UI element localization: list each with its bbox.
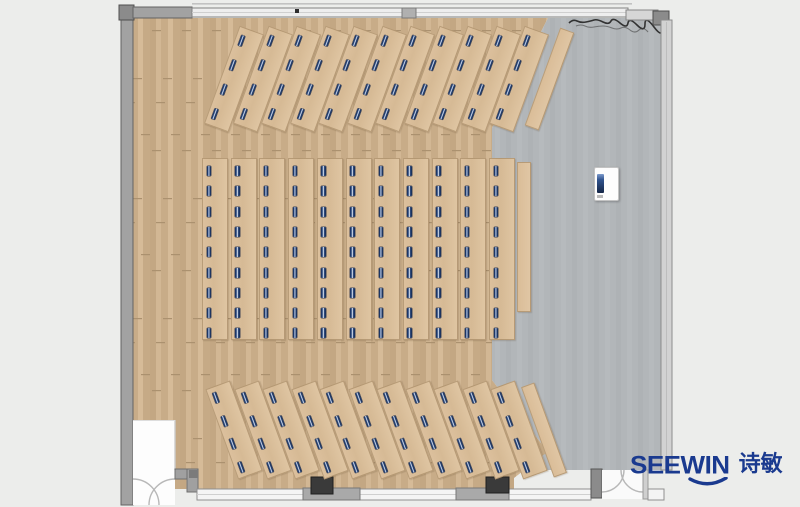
seat-marker: [436, 461, 444, 473]
seat-marker: [220, 84, 228, 96]
seat-marker: [465, 308, 470, 318]
center-desk-grid-desk: [489, 158, 515, 340]
seat-marker: [207, 166, 212, 176]
seat-marker: [391, 84, 399, 96]
podium: [594, 167, 619, 201]
seat-marker: [237, 35, 245, 47]
seat-marker: [294, 461, 302, 473]
seat-marker: [350, 288, 355, 298]
seat-marker: [207, 328, 212, 338]
center-desk-grid-desk: [374, 158, 400, 340]
seat-marker: [379, 268, 384, 278]
seat-marker: [465, 268, 470, 278]
seat-marker: [297, 392, 305, 404]
seat-marker: [321, 186, 326, 196]
seat-marker: [420, 415, 428, 427]
seat-marker: [277, 415, 285, 427]
seat-marker: [257, 438, 265, 450]
seat-marker: [264, 247, 269, 257]
seat-marker: [437, 35, 445, 47]
seat-marker: [411, 392, 419, 404]
seat-marker: [371, 59, 379, 71]
seat-marker: [293, 288, 298, 298]
seat-marker: [436, 247, 441, 257]
seat-marker: [235, 227, 240, 237]
seat-marker: [407, 227, 412, 237]
seat-marker: [456, 438, 464, 450]
seat-marker: [485, 438, 493, 450]
seat-marker: [285, 59, 293, 71]
seat-marker: [277, 84, 285, 96]
seat-marker: [235, 268, 240, 278]
seat-marker: [485, 59, 493, 71]
seat-marker: [407, 207, 412, 217]
seat-marker: [228, 59, 236, 71]
seat-marker: [321, 166, 326, 176]
seat-marker: [321, 328, 326, 338]
seat-marker: [362, 84, 370, 96]
seat-marker: [305, 84, 313, 96]
seat-marker: [207, 308, 212, 318]
seat-marker: [505, 84, 513, 96]
center-desk-grid-desk: [259, 158, 285, 340]
seat-marker: [436, 288, 441, 298]
seat-marker: [293, 186, 298, 196]
seat-marker: [235, 247, 240, 257]
seat-marker: [235, 308, 240, 318]
brand-logo: SEEWIN 诗敏: [630, 452, 783, 478]
seat-marker: [467, 108, 475, 120]
seat-marker: [321, 308, 326, 318]
seat-marker: [350, 227, 355, 237]
seat-marker: [407, 308, 412, 318]
seat-marker: [436, 328, 441, 338]
seat-marker: [350, 308, 355, 318]
podium-tray: [597, 195, 603, 198]
seat-marker: [321, 288, 326, 298]
seat-marker: [211, 108, 219, 120]
seat-marker: [235, 288, 240, 298]
seat-marker: [257, 59, 265, 71]
seat-marker: [350, 166, 355, 176]
seat-marker: [448, 415, 456, 427]
seat-marker: [353, 108, 361, 120]
seat-marker: [207, 227, 212, 237]
seat-marker: [264, 328, 269, 338]
seat-marker: [494, 207, 499, 217]
seat-marker: [264, 227, 269, 237]
seat-marker: [399, 438, 407, 450]
seat-marker: [264, 288, 269, 298]
seat-marker: [293, 247, 298, 257]
seat-marker: [293, 207, 298, 217]
seat-marker: [293, 308, 298, 318]
seat-marker: [468, 392, 476, 404]
seat-marker: [363, 415, 371, 427]
seat-marker: [465, 35, 473, 47]
seat-marker: [379, 328, 384, 338]
center-desk-grid-desk: [288, 158, 314, 340]
seat-marker: [350, 207, 355, 217]
seat-marker: [494, 227, 499, 237]
seat-marker: [407, 268, 412, 278]
center-desk-grid-desk: [202, 158, 228, 340]
seat-marker: [237, 461, 245, 473]
seat-marker: [522, 461, 530, 473]
seat-marker: [493, 461, 501, 473]
seat-marker: [264, 308, 269, 318]
seat-marker: [408, 35, 416, 47]
seat-marker: [379, 288, 384, 298]
seat-marker: [436, 166, 441, 176]
seat-marker: [235, 207, 240, 217]
logo-smile-icon: [687, 477, 729, 490]
seat-marker: [371, 438, 379, 450]
seat-marker: [350, 268, 355, 278]
seat-marker: [465, 247, 470, 257]
seat-marker: [494, 308, 499, 318]
seat-marker: [207, 186, 212, 196]
seat-marker: [321, 207, 326, 217]
seat-marker: [293, 166, 298, 176]
seat-marker: [294, 35, 302, 47]
seat-marker: [513, 59, 521, 71]
seat-marker: [439, 108, 447, 120]
seat-marker: [306, 415, 314, 427]
center-desk-grid-desk: [231, 158, 257, 340]
center-desk-grid-desk: [317, 158, 343, 340]
seat-marker: [342, 438, 350, 450]
seat-marker: [322, 461, 330, 473]
seat-marker: [325, 108, 333, 120]
seat-marker: [428, 59, 436, 71]
seat-marker: [465, 461, 473, 473]
seat-marker: [239, 108, 247, 120]
seat-marker: [410, 108, 418, 120]
logo-chinese: 诗敏: [739, 453, 783, 475]
seat-marker: [264, 186, 269, 196]
seat-marker: [207, 247, 212, 257]
floor-plan-canvas: SEEWIN 诗敏: [0, 0, 800, 507]
seat-marker: [448, 84, 456, 96]
seat-marker: [391, 415, 399, 427]
seat-marker: [321, 247, 326, 257]
seat-marker: [220, 415, 228, 427]
seat-marker: [465, 207, 470, 217]
seat-marker: [342, 59, 350, 71]
seat-marker: [264, 268, 269, 278]
seat-marker: [436, 268, 441, 278]
seat-marker: [379, 186, 384, 196]
seat-marker: [293, 227, 298, 237]
furniture-layer: [0, 0, 800, 507]
seat-marker: [240, 392, 248, 404]
seat-marker: [494, 35, 502, 47]
seat-marker: [350, 328, 355, 338]
seat-marker: [379, 166, 384, 176]
seat-marker: [407, 186, 412, 196]
seat-marker: [380, 35, 388, 47]
center-desk-grid-desk: [432, 158, 458, 340]
seat-marker: [522, 35, 530, 47]
seat-marker: [436, 308, 441, 318]
seat-marker: [207, 288, 212, 298]
seat-marker: [465, 328, 470, 338]
seat-marker: [407, 328, 412, 338]
seat-marker: [321, 227, 326, 237]
seat-marker: [235, 328, 240, 338]
seat-marker: [248, 84, 256, 96]
seat-marker: [266, 35, 274, 47]
seat-marker: [228, 438, 236, 450]
seat-marker: [436, 227, 441, 237]
seat-marker: [265, 461, 273, 473]
podium-screen-icon: [597, 174, 604, 193]
seat-marker: [407, 247, 412, 257]
seat-marker: [207, 207, 212, 217]
seat-marker: [436, 207, 441, 217]
seat-marker: [379, 308, 384, 318]
center-side-table-desk: [517, 162, 531, 312]
seat-marker: [269, 392, 277, 404]
seat-marker: [505, 415, 513, 427]
seat-marker: [419, 84, 427, 96]
seat-marker: [379, 227, 384, 237]
center-desk-grid-desk: [403, 158, 429, 340]
seat-marker: [212, 392, 220, 404]
seat-marker: [379, 461, 387, 473]
seat-marker: [235, 186, 240, 196]
seat-marker: [314, 438, 322, 450]
seat-marker: [350, 186, 355, 196]
seat-marker: [293, 328, 298, 338]
seat-marker: [465, 186, 470, 196]
seat-marker: [379, 207, 384, 217]
seat-marker: [494, 186, 499, 196]
seat-marker: [407, 288, 412, 298]
seat-marker: [293, 268, 298, 278]
seat-marker: [249, 415, 257, 427]
seat-marker: [436, 186, 441, 196]
seat-marker: [399, 59, 407, 71]
seat-marker: [326, 392, 334, 404]
seat-marker: [285, 438, 293, 450]
seat-marker: [440, 392, 448, 404]
seat-marker: [494, 247, 499, 257]
seat-marker: [323, 35, 331, 47]
seat-marker: [235, 166, 240, 176]
seat-marker: [465, 227, 470, 237]
seat-marker: [494, 166, 499, 176]
seat-marker: [296, 108, 304, 120]
logo-wordmark: SEEWIN: [630, 453, 730, 478]
seat-marker: [456, 59, 464, 71]
seat-marker: [494, 288, 499, 298]
seat-marker: [314, 59, 322, 71]
seat-marker: [207, 268, 212, 278]
seat-marker: [465, 166, 470, 176]
seat-marker: [465, 288, 470, 298]
seat-marker: [264, 166, 269, 176]
seat-marker: [383, 392, 391, 404]
seat-marker: [350, 247, 355, 257]
seat-marker: [476, 84, 484, 96]
seat-marker: [407, 166, 412, 176]
seat-marker: [497, 392, 505, 404]
seat-marker: [408, 461, 416, 473]
seat-marker: [477, 415, 485, 427]
seat-marker: [379, 247, 384, 257]
center-desk-grid-desk: [460, 158, 486, 340]
seat-marker: [334, 415, 342, 427]
seat-marker: [496, 108, 504, 120]
seat-marker: [351, 461, 359, 473]
seat-marker: [494, 328, 499, 338]
seat-marker: [264, 207, 269, 217]
seat-marker: [354, 392, 362, 404]
seat-marker: [334, 84, 342, 96]
seat-marker: [513, 438, 521, 450]
seat-marker: [321, 268, 326, 278]
seat-marker: [428, 438, 436, 450]
seat-marker: [494, 268, 499, 278]
seat-marker: [351, 35, 359, 47]
seat-marker: [268, 108, 276, 120]
seat-marker: [382, 108, 390, 120]
center-desk-grid-desk: [346, 158, 372, 340]
